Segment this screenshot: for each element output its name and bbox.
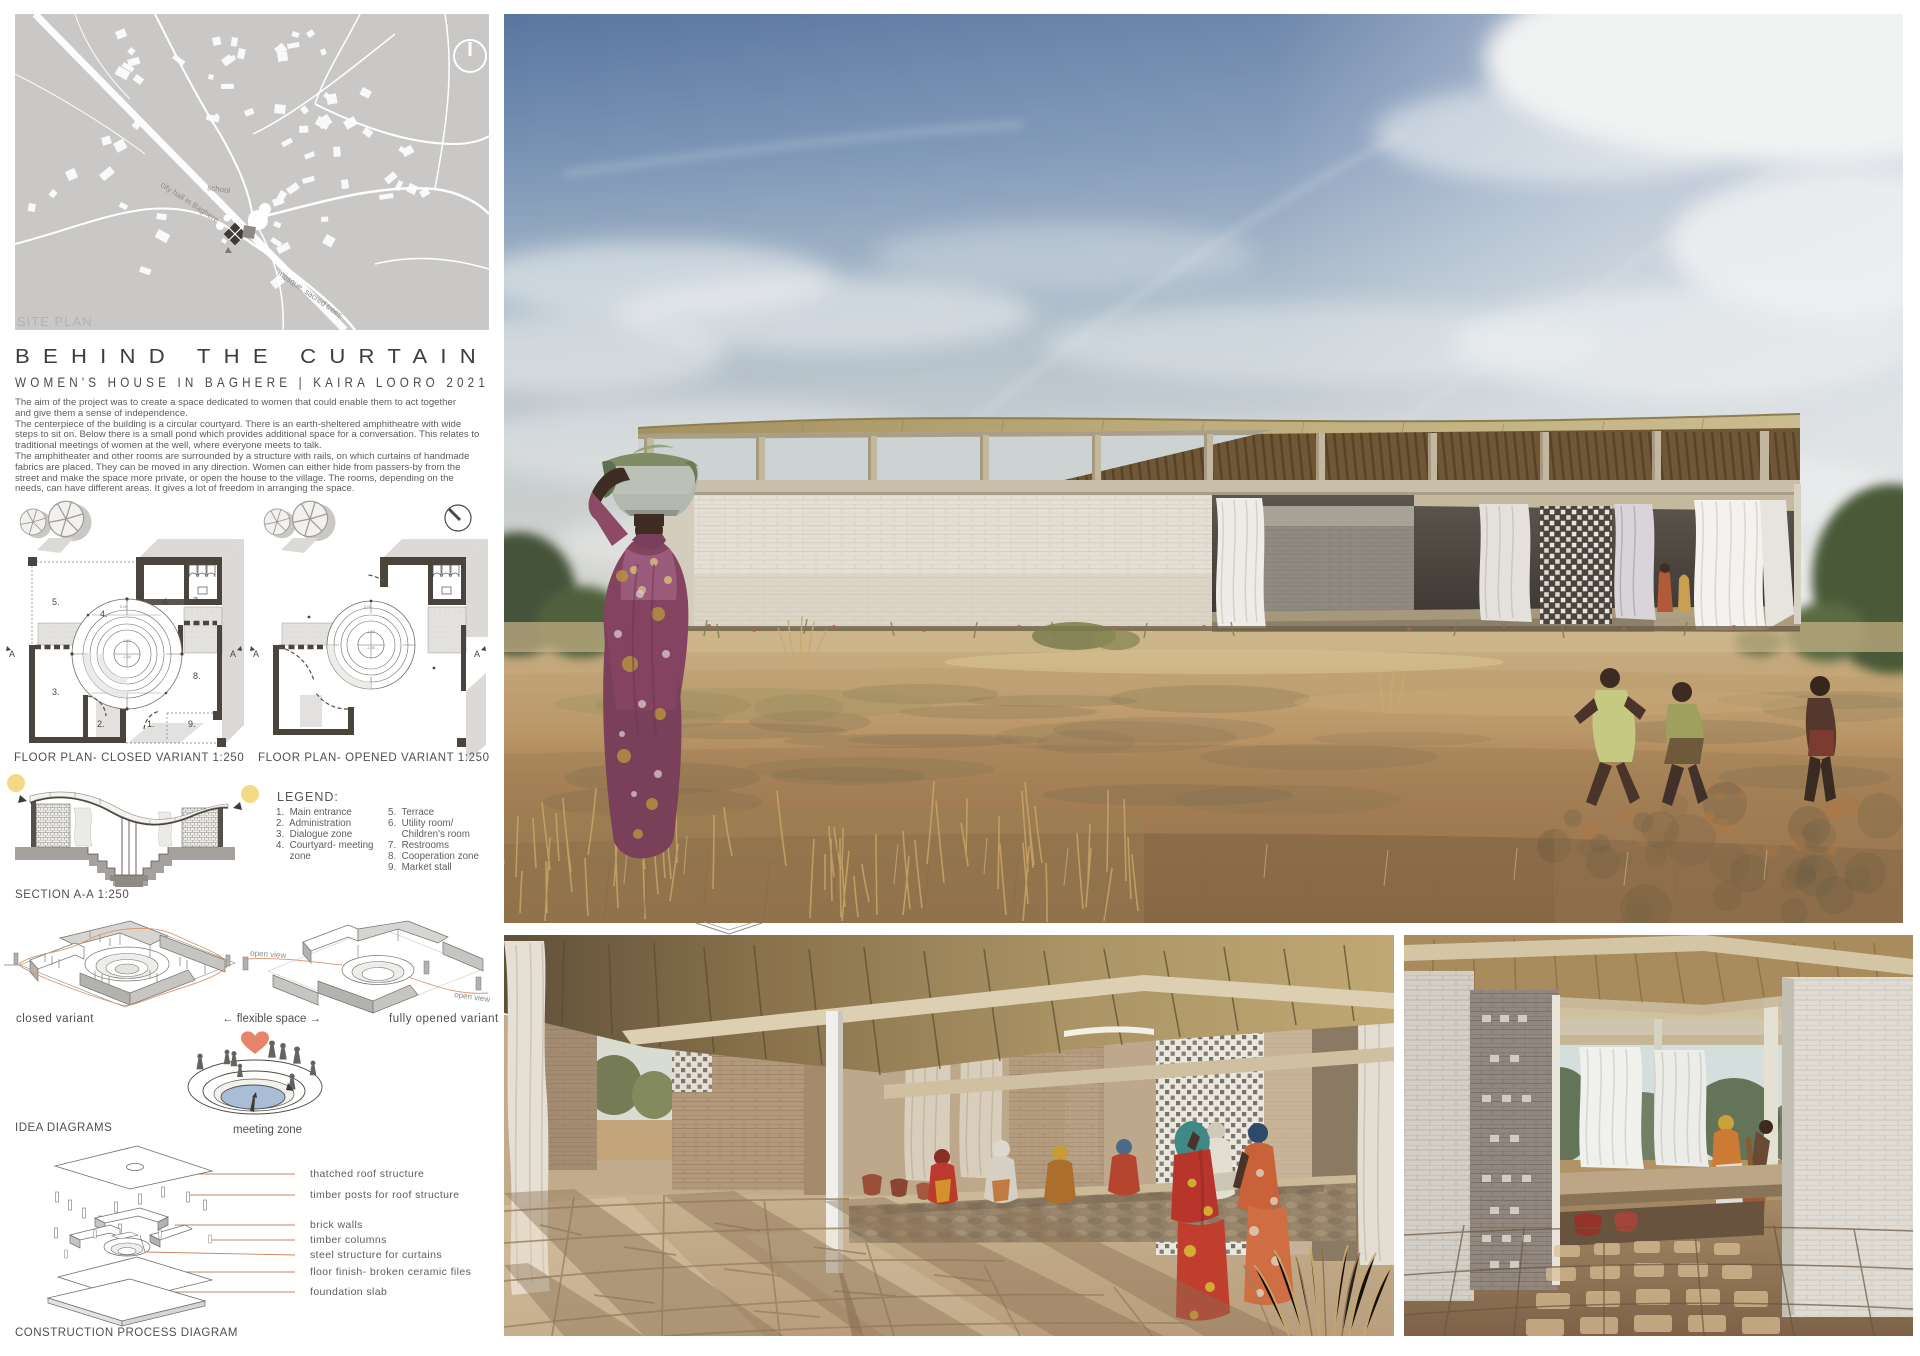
svg-text:A: A — [474, 649, 480, 659]
svg-text:SECTION A-A 1:250: SECTION A-A 1:250 — [15, 889, 129, 901]
svg-text:thatched roof structure: thatched roof structure — [310, 1168, 424, 1180]
svg-text:-1.50: -1.50 — [122, 638, 132, 643]
svg-text:brick walls: brick walls — [310, 1219, 363, 1231]
svg-text:4.: 4. — [100, 609, 108, 619]
svg-text:closed variant: closed variant — [16, 1013, 94, 1025]
svg-text:← flexible space →: ← flexible space → — [222, 1013, 321, 1025]
svg-text:fully opened variant: fully opened variant — [389, 1013, 499, 1025]
svg-text:7.: 7. — [193, 596, 201, 606]
svg-text:BEHIND THE CURTAIN: BEHIND THE CURTAIN — [15, 346, 489, 368]
svg-text:FLOOR PLAN- OPENED VARIANT 1:: FLOOR PLAN- OPENED VARIANT 1:250 — [258, 752, 490, 764]
svg-text:A: A — [253, 649, 259, 659]
svg-text:-1.80: -1.80 — [366, 645, 376, 650]
svg-text:open view: open view — [454, 990, 491, 1004]
svg-text:WOMEN'S HOUSE IN BAGHERE | KAI: WOMEN'S HOUSE IN BAGHERE | KAIRA LOORO 2… — [15, 374, 489, 390]
svg-text:A: A — [9, 649, 15, 659]
svg-text:5.: 5. — [52, 597, 60, 607]
svg-text:2.: 2. — [97, 719, 105, 729]
svg-text:-1.50: -1.50 — [366, 629, 376, 634]
svg-text:meeting zone: meeting zone — [233, 1124, 302, 1136]
svg-text:IDEA DIAGRAMS: IDEA DIAGRAMS — [15, 1122, 112, 1134]
svg-text:6.: 6. — [163, 597, 171, 607]
svg-text:0.00: 0.00 — [364, 604, 373, 609]
svg-text:1.: 1. — [147, 719, 155, 729]
svg-text:0.00: 0.00 — [120, 604, 129, 609]
svg-text:A: A — [230, 649, 236, 659]
svg-text:timber posts for roof structur: timber posts for roof structure — [310, 1189, 460, 1201]
svg-text:9.: 9. — [188, 719, 196, 729]
svg-text:8.: 8. — [193, 671, 201, 681]
svg-text:SITE PLAN: SITE PLAN — [17, 314, 92, 329]
svg-text:foundation slab: foundation slab — [310, 1286, 387, 1298]
svg-text:FLOOR PLAN- CLOSED VARIANT 1:: FLOOR PLAN- CLOSED VARIANT 1:250 — [14, 752, 244, 764]
svg-text:3.: 3. — [52, 687, 60, 697]
svg-text:-1.80: -1.80 — [122, 654, 132, 659]
svg-text:timber columns: timber columns — [310, 1234, 387, 1246]
svg-text:floor finish- broken ceramic f: floor finish- broken ceramic files — [310, 1266, 471, 1278]
svg-text:open view: open view — [250, 948, 287, 960]
svg-text:CONSTRUCTION PROCESS DIAGRAM: CONSTRUCTION PROCESS DIAGRAM — [15, 1327, 238, 1339]
svg-text:steel structure for curtains: steel structure for curtains — [310, 1249, 442, 1261]
